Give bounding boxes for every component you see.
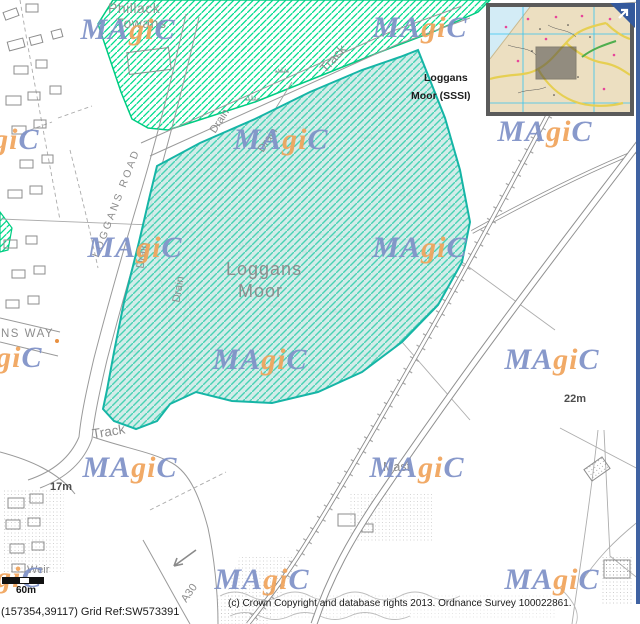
- map-label-loggans-moor-1: Loggans: [226, 260, 302, 278]
- map-label-ns-way: NS WAY: [1, 329, 54, 341]
- magic-watermark: MAgiC: [369, 453, 464, 483]
- map-label-spot-height-17m: 17m: [50, 482, 72, 493]
- copyright-notice: (c) Crown Copyright and database rights …: [228, 598, 572, 609]
- magic-watermark: MAgiC: [80, 15, 175, 45]
- magic-watermark: MAgiC: [497, 117, 592, 147]
- grid-reference-readout: (157354,39117) Grid Ref:SW573391: [1, 606, 179, 618]
- current-extent-indicator[interactable]: [536, 47, 576, 79]
- magic-watermark: MAgiC: [233, 125, 328, 155]
- map-label-loggans-moor-2: Moor: [238, 282, 283, 300]
- magic-watermark: MAgiC: [372, 13, 467, 43]
- map-frame-edge: [636, 0, 640, 604]
- magic-watermark: MAgiC: [504, 345, 599, 375]
- magic-watermark: MAgiC: [504, 565, 599, 595]
- magic-watermark: MAgiC: [214, 565, 309, 595]
- magic-watermark: MAgiC: [0, 125, 40, 155]
- map-label-sssi-label-2: Moor (SSSI): [411, 91, 471, 102]
- inset-collapse-button[interactable]: [610, 3, 635, 28]
- magic-watermark: MAgiC: [82, 453, 177, 483]
- overview-map-content: [490, 7, 630, 112]
- map-symbol-dot: [55, 339, 59, 343]
- magic-watermark: MAgiC: [212, 345, 307, 375]
- scale-bar-label: 60m: [16, 585, 36, 596]
- magic-watermark: MAgiC: [372, 233, 467, 263]
- map-label-spot-height-22m: 22m: [564, 394, 586, 405]
- magic-watermark: MAgiC: [87, 233, 182, 263]
- map-viewport[interactable]: PhillackTowansLoggansMoor (SSSI)LoggansM…: [0, 0, 640, 624]
- magic-watermark: MAgiC: [0, 343, 43, 373]
- map-label-sssi-label-1: Loggans: [424, 73, 468, 84]
